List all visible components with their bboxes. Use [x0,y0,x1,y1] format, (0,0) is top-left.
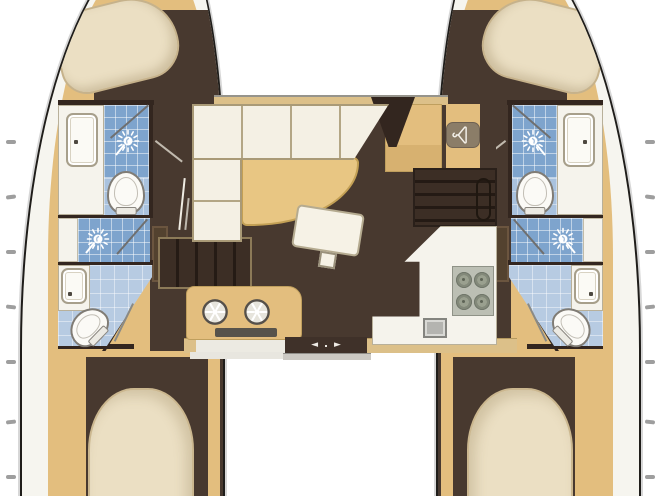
burner-icon [474,294,490,310]
cockpit-step [190,352,286,359]
stool [318,251,337,269]
galley-sink-round [201,298,229,326]
catamaran-floorplan: ◄ ► [0,0,661,496]
stove-icon [452,266,494,316]
salon: ◄ ► [0,0,661,496]
companionway-port [158,237,252,289]
hanger-icon [446,122,480,148]
door-dot [325,345,327,347]
burner-icon [456,294,472,310]
galley-sink-square [423,318,447,338]
burner-icon [474,272,490,288]
settee-side [192,158,242,242]
galley-counter-port [186,286,302,340]
hanging-locker [446,104,480,168]
sliding-door: ◄ ► [285,337,367,354]
galley-sink-round [243,298,271,326]
burner-icon [456,272,472,288]
door-arrow-right: ► [334,341,341,350]
door-arrow-left: ◄ [311,341,318,350]
handrail [476,178,491,221]
companionway-starboard [413,168,497,227]
drainer-strip [215,328,277,337]
door-sill [283,353,371,360]
